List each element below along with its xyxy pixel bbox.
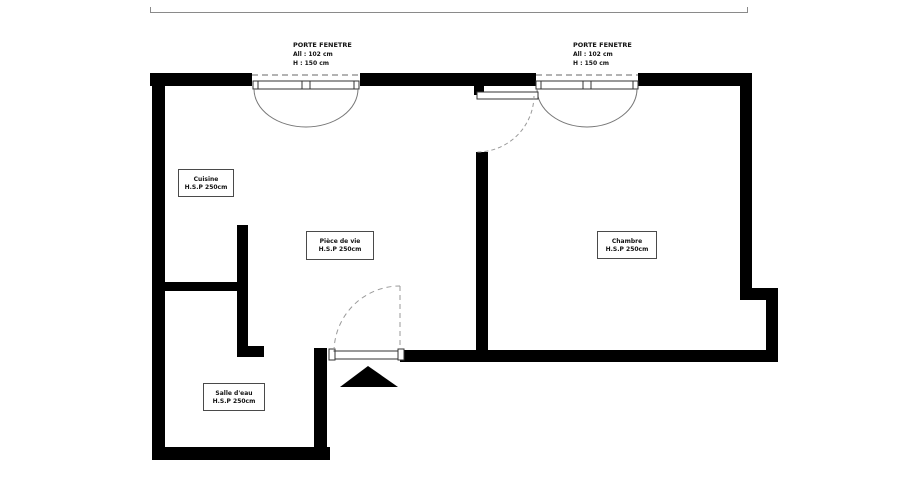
bottom-left-wall (152, 447, 330, 460)
room-ceiling-height: H.S.P 250cm (213, 398, 256, 405)
entrance-arrow-icon (340, 366, 398, 387)
room-name: Cuisine (194, 176, 219, 183)
window1-frame-left-block (253, 81, 258, 89)
room-name: Pièce de vie (320, 238, 361, 245)
kitchen-horizontal-wall (165, 282, 237, 291)
bedroom-door-swing-arc (477, 96, 534, 152)
right-wall (740, 73, 752, 300)
room-ceiling-height: H.S.P 250cm (606, 246, 649, 253)
room-ceiling-height: H.S.P 250cm (185, 184, 228, 191)
left-wall (152, 73, 165, 460)
window1-annotation: PORTE FENETRE All : 102 cm H : 150 cm (293, 41, 352, 68)
window1-left-leaf-swing-arc (254, 89, 306, 127)
top-wall-left-segment (150, 73, 252, 86)
window2-annotation: PORTE FENETRE All : 102 cm H : 150 cm (573, 41, 632, 68)
window2-right-leaf-swing-arc (587, 89, 637, 127)
entry-door-swing-arc (334, 286, 400, 352)
room-label-salle-deau: Salle d'eau H.S.P 250cm (203, 383, 265, 411)
room-label-chambre: Chambre H.S.P 250cm (597, 231, 657, 259)
window2-frame-center-block (583, 81, 591, 89)
bedroom-door-jamb-stub (474, 86, 484, 95)
window1-frame-right-block (354, 81, 359, 89)
window2-left-leaf-swing-arc (537, 89, 587, 127)
window1-frame (253, 81, 359, 89)
window2-title: PORTE FENETRE (573, 41, 632, 50)
entry-side-wall (314, 348, 327, 460)
kitchen-vertical-wall (237, 225, 248, 357)
room-label-piece-de-vie: Pièce de vie H.S.P 250cm (306, 231, 374, 260)
top-wall-right-segment (638, 73, 752, 86)
window2-sill-height: All : 102 cm (573, 50, 632, 59)
kitchen-wall-foot (248, 346, 264, 357)
window1-height: H : 150 cm (293, 59, 352, 68)
room-label-cuisine: Cuisine H.S.P 250cm (178, 169, 234, 197)
floor-plan: PORTE FENETRE All : 102 cm H : 150 cm PO… (0, 0, 900, 500)
window1-sill-height: All : 102 cm (293, 50, 352, 59)
room-name: Chambre (612, 238, 642, 245)
window1-frame-center-block (302, 81, 310, 89)
window2-frame (536, 81, 638, 89)
bedroom-door-leaf (477, 92, 538, 99)
right-bump-vertical-wall (766, 288, 778, 362)
window2-height: H : 150 cm (573, 59, 632, 68)
living-bedroom-divider-wall (476, 152, 488, 362)
entry-door-leaf (333, 351, 400, 359)
bottom-middle-wall (400, 350, 778, 362)
terrace-edge-tick-right (747, 7, 748, 13)
top-wall-middle-segment (360, 73, 536, 86)
room-name: Salle d'eau (215, 390, 252, 397)
entry-door-left-jamb (329, 349, 335, 360)
window1-right-leaf-swing-arc (306, 89, 358, 127)
room-ceiling-height: H.S.P 250cm (319, 246, 362, 253)
window1-title: PORTE FENETRE (293, 41, 352, 50)
terrace-edge-tick-left (150, 7, 151, 13)
terrace-edge-line (150, 12, 748, 13)
window2-frame-left-block (536, 81, 541, 89)
